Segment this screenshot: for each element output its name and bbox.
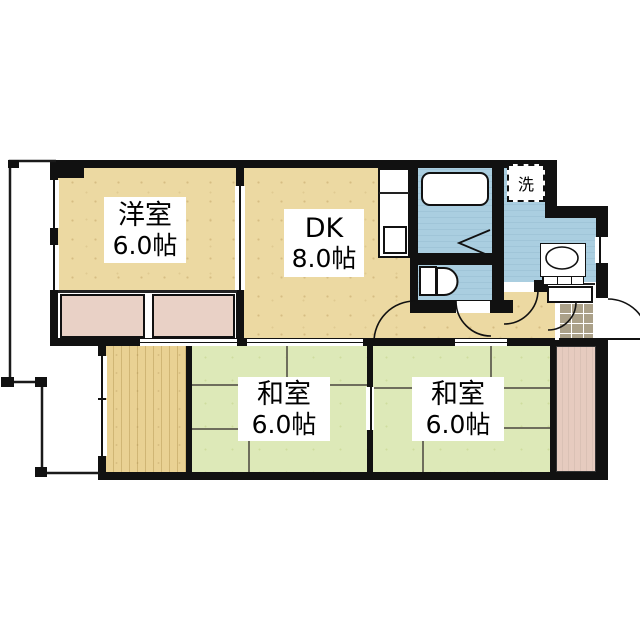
balcony-corner-cap [1,377,14,387]
kitchen-sink [383,226,407,254]
wall-bottom [100,472,608,480]
room-size: 6.0帖 [412,410,504,439]
sliding-door-washitsu-divider [366,387,374,430]
room-label-washitsu-1: 和室 6.0帖 [238,377,330,441]
wall-above-closets [58,290,237,293]
room-name: DK [284,213,364,244]
genkan-step [555,303,559,340]
balcony-corner-cap [35,377,47,387]
sliding-partition-western-dk [235,186,245,290]
room-name: 洋室 [104,200,186,231]
entrance-door-arc [608,299,640,339]
balcony-corner-cap [8,160,19,168]
window-western-left-2 [49,245,59,290]
wall-top [50,160,557,168]
room-size: 6.0帖 [104,231,186,260]
closet-a [60,294,145,338]
room-name: 和室 [238,379,330,410]
room-name: 和室 [412,379,504,410]
room-label-western: 洋室 6.0帖 [104,197,186,263]
laundry-space: 洗 [507,164,545,202]
wall-bath-washroom [492,160,504,313]
balcony-corner-cap [35,467,47,477]
sliding-door-hall-washitsu2 [455,339,507,346]
closet-b [152,294,235,338]
sliding-door-dk-washitsu1 [247,339,363,346]
entrance-door-opening [595,298,609,338]
window-lower-left-2 [97,400,107,456]
window-lower-left-1 [97,356,107,398]
toilet-tank [419,266,437,296]
laundry-label: 洗 [518,171,534,195]
wall-washitsu2-closet-divider [550,346,556,472]
wall-wood-washitsu1-divider [186,346,192,472]
sliding-door-opening-1 [140,339,237,346]
room-size: 8.0帖 [284,244,364,273]
genkan-tiles [559,303,593,340]
room-size: 6.0帖 [238,410,330,439]
floor-plan: 洗 洋室 6.0帖 DK 8.0帖 和室 6.0帖 和室 6.0帖 [0,0,640,640]
washbasin-drawers [542,276,584,285]
bathtub [421,172,489,206]
wall-washroom-right-upper [545,160,557,218]
room-label-washitsu-2: 和室 6.0帖 [412,377,504,441]
washbasin-cabinet [540,243,586,277]
kitchen-counter-divider [379,192,409,194]
shoe-cabinet [547,286,593,303]
wall-dk-right [410,160,418,313]
hallway [410,313,558,339]
window-western-left-1 [49,180,59,228]
room-label-dk: DK 8.0帖 [284,209,364,277]
wall-bath-bottom [410,253,504,265]
wood-flooring-area [106,346,186,472]
closet-strip [556,346,596,472]
window-right-washroom [595,237,609,263]
toilet-door-opening [456,301,490,313]
